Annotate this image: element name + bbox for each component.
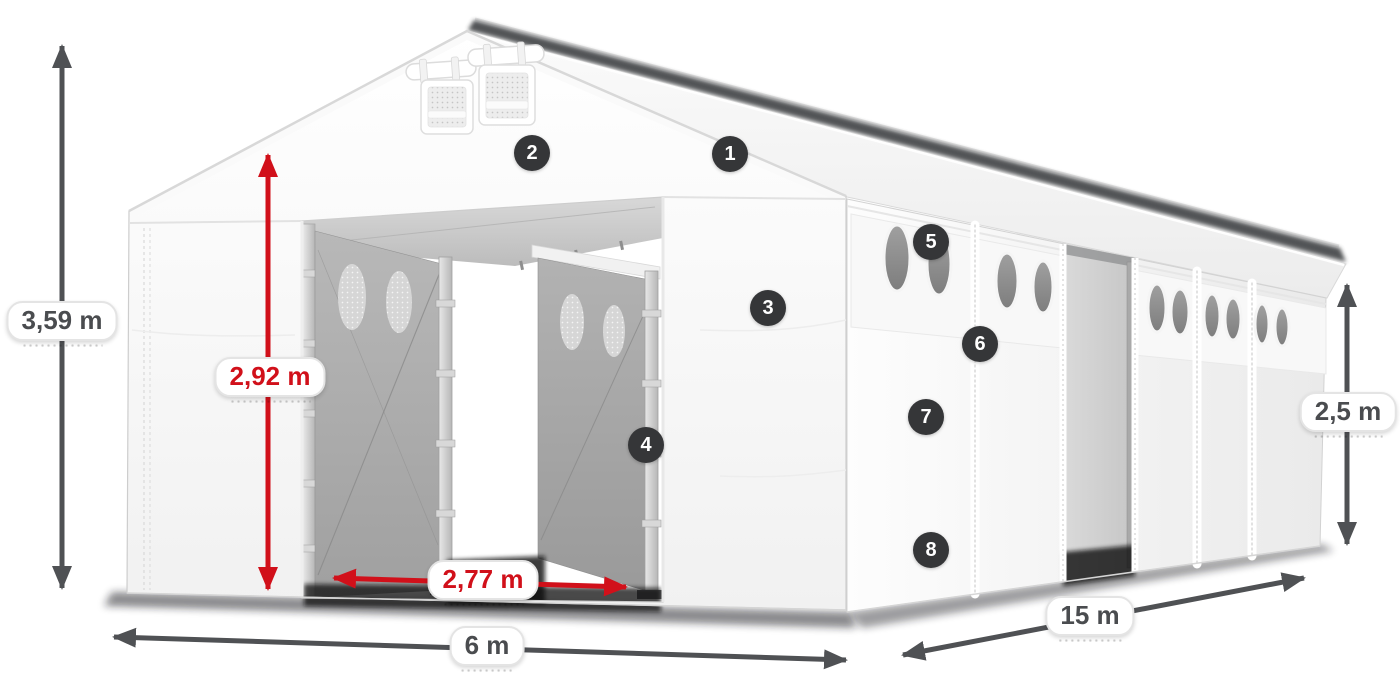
entrance-left-panel xyxy=(315,231,460,597)
callout-badge-7[interactable]: 7 xyxy=(908,399,944,435)
dimension-label-entrance-height: 2,92 m xyxy=(215,357,326,397)
dimension-label-ridge-height: 3,59 m xyxy=(7,301,118,341)
callout-badge-2[interactable]: 2 xyxy=(514,135,550,171)
callout-badge-6[interactable]: 6 xyxy=(962,326,998,362)
callout-badge-1[interactable]: 1 xyxy=(712,136,748,172)
entrance-right-panel xyxy=(532,245,667,599)
side-open-section xyxy=(1063,244,1135,586)
dimension-label-side-length: 15 m xyxy=(1045,596,1134,636)
dimension-label-entrance-width: 2,77 m xyxy=(428,560,539,600)
dimension-label-side-height: 2,5 m xyxy=(1300,392,1397,432)
dimension-label-front-width: 6 m xyxy=(450,626,525,666)
callout-badge-5[interactable]: 5 xyxy=(913,224,949,260)
tent-diagram: 3,59 m 2,92 m 2,77 m 6 m 15 m 2,5 m 1 2 … xyxy=(0,0,1400,700)
tent-illustration xyxy=(0,0,1400,700)
callout-badge-4[interactable]: 4 xyxy=(628,427,664,463)
entrance-interior xyxy=(301,197,667,612)
gable-vent-right xyxy=(467,40,545,125)
callout-badge-8[interactable]: 8 xyxy=(913,532,949,568)
callout-badge-3[interactable]: 3 xyxy=(750,290,786,326)
